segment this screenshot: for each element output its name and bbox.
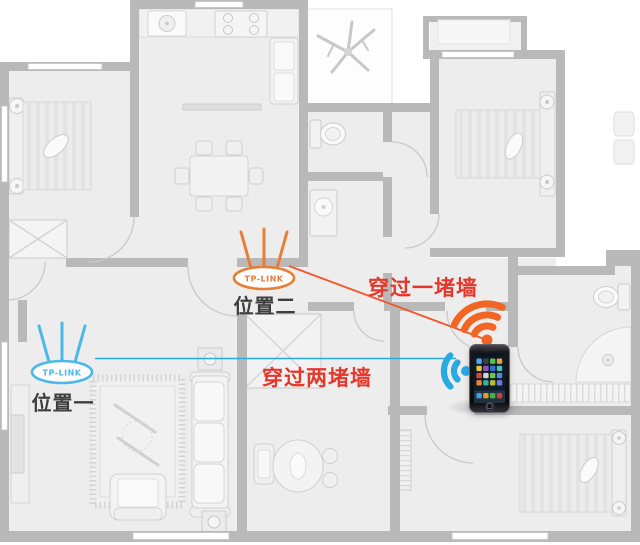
armchair xyxy=(110,474,166,520)
router-position1-label: 位置一 xyxy=(23,387,103,416)
router-position2-label: 位置二 xyxy=(225,290,305,319)
router-position1: TP-LINK xyxy=(25,320,99,386)
floorplan xyxy=(0,0,640,545)
annotation-through-two-walls: 穿过两堵墙 xyxy=(262,362,372,392)
router-brand: TP-LINK xyxy=(43,369,82,378)
washer xyxy=(310,190,337,236)
closet-top-left xyxy=(9,220,67,258)
fridge xyxy=(270,38,298,104)
ac-units xyxy=(614,112,634,164)
router-antennas xyxy=(241,229,287,268)
annotation-through-one-wall: 穿过一堵墙 xyxy=(368,272,478,302)
sofa xyxy=(190,372,230,517)
wifi-floorplan-diagram: TP-LINK 位置二 TP-LINK 位置一 穿过一堵墙 穿过两堵墙 xyxy=(0,0,640,545)
router-brand: TP-LINK xyxy=(245,275,284,284)
bath-counter xyxy=(510,384,631,402)
kitchen-counter xyxy=(139,9,299,37)
smartphone xyxy=(469,344,510,413)
phone-earpiece xyxy=(485,348,494,351)
phone-home-button xyxy=(485,402,494,411)
bed-bottom-right xyxy=(520,430,626,516)
phone-camera-icon xyxy=(478,348,481,351)
router-antennas xyxy=(39,323,85,362)
toilet-right xyxy=(594,284,631,310)
phone-screen xyxy=(474,353,505,403)
router-position2: TP-LINK xyxy=(227,226,301,292)
bed-top-left xyxy=(9,98,91,194)
